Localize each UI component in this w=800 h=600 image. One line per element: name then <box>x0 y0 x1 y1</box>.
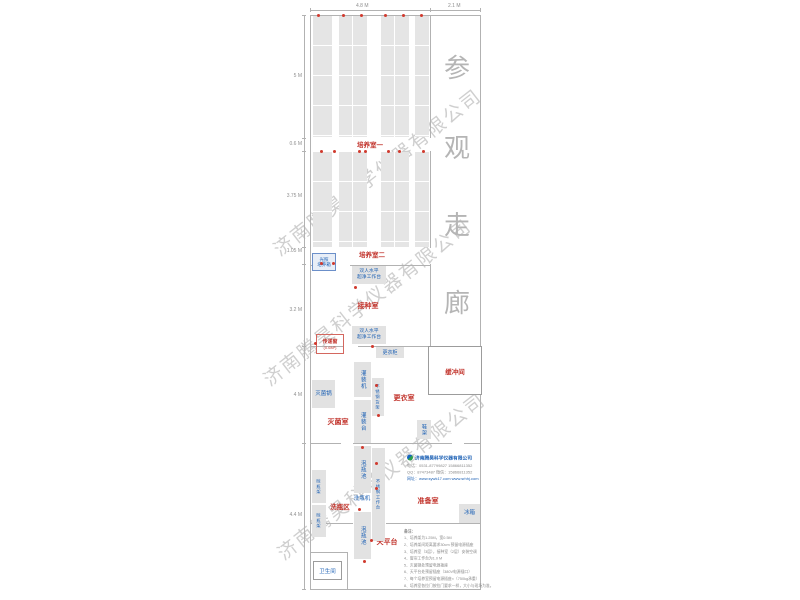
culture-rack <box>415 16 429 137</box>
drying-rack: 晾瓶架 <box>312 505 326 537</box>
shoe-rack-label: 鞋架 <box>421 424 427 436</box>
outlet-dot <box>398 150 401 153</box>
filling-machine: 灌装机 <box>354 362 371 397</box>
wall-partition <box>386 523 480 524</box>
outlet-dot <box>332 262 335 265</box>
dimension-label: 1.05 M <box>282 248 302 254</box>
drying-rack: 晾瓶架 <box>312 470 326 503</box>
dimension-tick <box>302 443 306 444</box>
dimension-label-corridor-width: 2.1 M <box>448 3 461 9</box>
dimension-tick <box>310 8 311 12</box>
outlet-dot <box>314 342 317 345</box>
autoclave-label: 灭菌锅 <box>315 391 332 398</box>
note-item: 6、天平台处预留插座（380V电源插口） <box>404 569 484 576</box>
soak-pool: 泡瓶池 <box>354 446 371 493</box>
wall-left <box>310 15 311 590</box>
note-item: 2、培养架间距离要求30cm 预留电源插座 <box>404 542 484 549</box>
shoe-rack: 鞋架 <box>417 420 431 439</box>
room-label-culture1: 培养室一 <box>340 138 400 149</box>
culture-rack <box>339 152 367 247</box>
outlet-dot <box>317 14 320 17</box>
stainless-worktable-label: 不锈钢工作台 <box>376 479 381 510</box>
dimension-tick <box>302 15 306 16</box>
outlet-dot <box>333 150 336 153</box>
filling-machine-label: 灌装机 <box>359 370 366 390</box>
note-item: 5、灭菌锅处预留电源插座 <box>404 562 484 569</box>
dimension-label-rooms-width: 4.8 M <box>356 3 369 9</box>
room-buffer: 缓冲间 <box>428 346 482 395</box>
room-label-changing: 更衣室 <box>388 392 420 403</box>
culture-rack <box>381 152 409 247</box>
outlet-dot <box>320 150 323 153</box>
fridge-label: 冰箱 <box>464 510 475 517</box>
wardrobe: 更衣柜 <box>376 347 404 358</box>
wall-partition <box>310 443 341 444</box>
note-item: 3、培养室（3层），接种室（2层）安装空调 <box>404 548 484 555</box>
dimension-label: 3.2 M <box>284 307 302 313</box>
outlet-dot <box>354 286 357 289</box>
dimension-label: 5 M <box>288 73 302 79</box>
culture-rack <box>381 16 409 137</box>
wall-corridor <box>430 15 431 138</box>
dimension-tick <box>480 8 481 12</box>
culture-rack <box>415 152 429 247</box>
outlet-dot <box>387 150 390 153</box>
outlet-dot <box>375 384 378 387</box>
company-block: 济南腾昊科学仪器有限公司 电话：0531-87799827 1586681135… <box>407 454 479 482</box>
outlet-dot <box>375 462 378 465</box>
corridor-char: 观 <box>441 128 473 165</box>
company-logo-icon <box>407 455 413 461</box>
culture-rack <box>313 16 332 137</box>
outlet-dot <box>377 414 380 417</box>
wall-toilet <box>310 552 348 553</box>
clean-bench-label-line2: 超净工作台 <box>357 275 381 281</box>
room-label-culture2: 培养室二 <box>342 248 402 259</box>
dimension-label: 0.6 M <box>284 141 302 147</box>
bottle-washer: 洗瓶机 <box>348 494 376 503</box>
wall-toilet <box>347 552 348 590</box>
outlet-dot <box>371 345 374 348</box>
company-logo-row: 济南腾昊科学仪器有限公司 <box>407 454 479 461</box>
autoclave: 灭菌锅 <box>312 380 335 408</box>
outlet-dot <box>370 539 373 542</box>
stainless-shelf: 不锈钢货架 <box>372 378 384 416</box>
pass-window-label: 传递窗 <box>322 338 337 345</box>
note-item: 1、培养架为1.25M，宽0.5M <box>404 535 484 542</box>
soak-pool-label: 泡瓶池 <box>359 526 366 546</box>
culture-rack <box>313 152 332 247</box>
note-item: 4、窗帘工作台为1.0 M <box>404 555 484 562</box>
corridor-char: 廊 <box>441 283 473 320</box>
clean-bench-label-line2: 超净工作台 <box>357 335 381 341</box>
outlet-dot <box>375 487 378 490</box>
wall-corridor <box>430 264 431 346</box>
wall-corridor <box>430 151 431 248</box>
notes-title: 备注： <box>404 528 484 535</box>
note-item: 8、培养室各拉门按拉门要求一样，大小与现场为准。 <box>404 582 484 589</box>
clean-bench: 双人水平 超净工作台 <box>352 266 386 284</box>
filling-table-label: 灌装台 <box>359 412 366 432</box>
dimension-tick <box>302 346 306 347</box>
floorplan-canvas: 济南腾昊科学仪器有限公司 济南腾昊科学仪器有限公司 济南腾昊科学仪器有限公司 4… <box>0 0 800 600</box>
outlet-dot <box>342 14 345 17</box>
toilet-label-box: 卫生间 <box>313 561 342 580</box>
pass-window: 传递窗 (0.6M²) <box>316 334 344 354</box>
outlet-dot <box>422 150 425 153</box>
dimension-label: 4.4 M <box>284 512 302 518</box>
corridor-char: 参 <box>441 48 473 85</box>
wall-partition <box>464 443 480 444</box>
dimension-tick <box>302 138 306 139</box>
outlet-dot <box>384 14 387 17</box>
outlet-dot <box>364 150 367 153</box>
pass-window-size: (0.6M²) <box>324 345 337 350</box>
culture-rack <box>339 16 367 137</box>
outlet-dot <box>360 14 363 17</box>
wall-partition <box>353 443 452 444</box>
clean-bench: 双人水平 超净工作台 <box>352 326 386 344</box>
outlet-dot <box>420 14 423 17</box>
note-item: 7、每个培养室预留电源插座×（750kg承重） <box>404 576 484 583</box>
dimension-label: 4 M <box>288 392 302 398</box>
outlet-dot <box>320 262 323 265</box>
dimension-tick <box>302 151 306 152</box>
stainless-shelf-label: 不锈钢货架 <box>375 384 380 410</box>
room-label-buffer: 缓冲间 <box>445 366 465 376</box>
dimension-label: 3.75 M <box>282 193 302 199</box>
filling-table: 灌装台 <box>354 400 371 443</box>
outlet-dot <box>358 150 361 153</box>
corridor-char: 走 <box>441 205 473 242</box>
company-web: 网址：www.sywk17.com www.srhhj.com <box>407 476 479 483</box>
drying-rack-label: 晾瓶架 <box>316 513 321 529</box>
room-label-toilet: 卫生间 <box>319 567 336 575</box>
outlet-dot <box>402 14 405 17</box>
company-name: 济南腾昊科学仪器有限公司 <box>415 454 472 461</box>
dimension-tick <box>302 589 306 590</box>
dimension-tick <box>430 8 431 12</box>
wardrobe-label: 更衣柜 <box>382 350 397 356</box>
dimension-line-top <box>310 10 481 11</box>
bottle-washer-label: 洗瓶机 <box>354 496 371 502</box>
dimension-tick <box>302 264 306 265</box>
dimension-line-left <box>304 15 305 590</box>
outlet-dot <box>358 508 361 511</box>
soak-pool: 泡瓶池 <box>354 512 371 559</box>
wall-right <box>480 15 481 590</box>
outlet-dot <box>361 446 364 449</box>
drying-rack-label: 晾瓶架 <box>316 479 321 495</box>
fridge: 冰箱 <box>459 504 480 523</box>
soak-pool-label: 泡瓶池 <box>359 460 366 480</box>
outlet-dot <box>363 560 366 563</box>
room-label-prep: 准备室 <box>413 495 443 506</box>
notes-block: 备注： 1、培养架为1.25M，宽0.5M 2、培养架间距离要求30cm 预留电… <box>404 528 484 589</box>
room-label-inoculation: 接种室 <box>348 300 388 311</box>
dimension-tick <box>302 247 306 248</box>
room-label-sterilization: 灭菌室 <box>322 416 354 427</box>
